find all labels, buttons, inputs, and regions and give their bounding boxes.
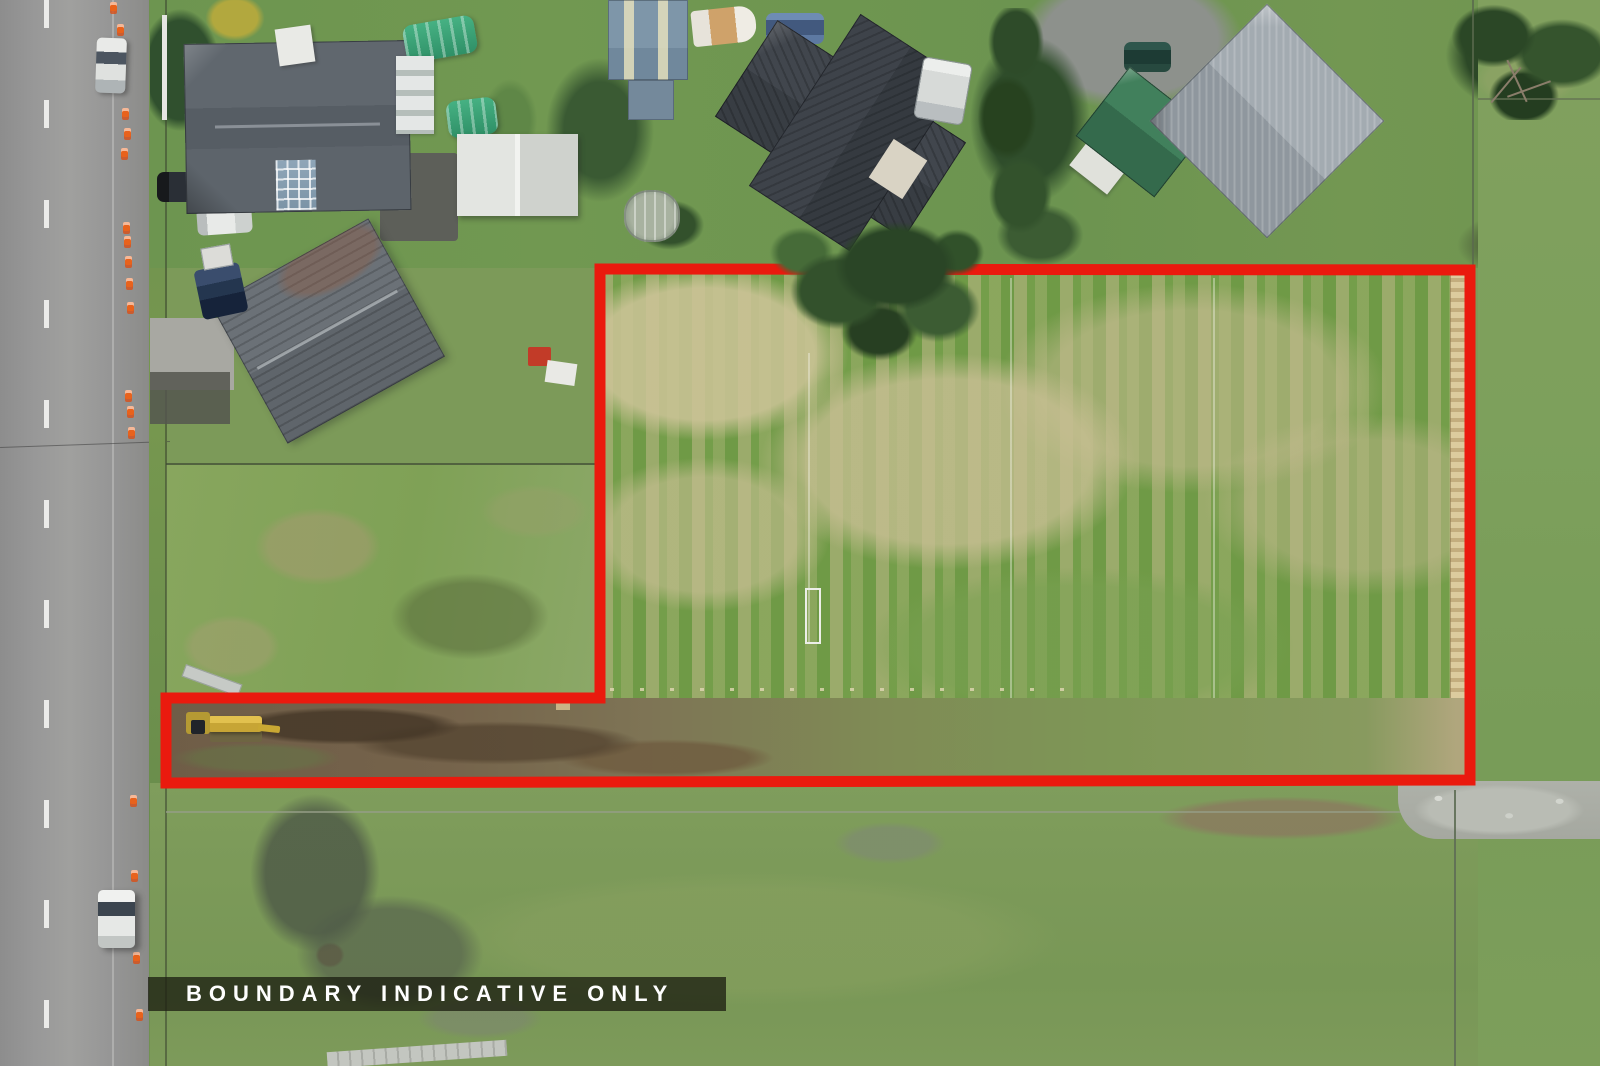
fence-post-row <box>610 688 1070 691</box>
traffic-cone-icon <box>127 302 134 311</box>
traffic-cone-icon <box>130 795 137 804</box>
green-tunnel-house-2 <box>445 96 499 139</box>
roadside-fence <box>165 0 167 1066</box>
gravel-patch <box>1398 781 1600 839</box>
boundary-disclaimer-text: BOUNDARY INDICATIVE ONLY <box>148 981 674 1007</box>
south-pasture <box>150 783 1478 1066</box>
east-boundary-fence <box>1472 0 1474 780</box>
traffic-cone-icon <box>124 128 131 137</box>
old-wire-fence <box>166 811 1460 813</box>
boundary-disclaimer-banner: BOUNDARY INDICATIVE ONLY <box>148 977 726 1011</box>
neighbour-paddock-east <box>1478 0 1600 1066</box>
parked-car-white-south <box>98 890 135 948</box>
traffic-cone-icon <box>127 406 134 415</box>
traffic-cone-icon <box>117 24 124 33</box>
old-fence-line <box>1213 278 1215 698</box>
white-gable-shed <box>457 134 578 216</box>
small-white-shed <box>275 25 316 67</box>
traffic-cone-icon <box>124 236 131 245</box>
aerial-photo: BOUNDARY INDICATIVE ONLY <box>0 0 1600 1066</box>
traffic-cone-icon <box>125 256 132 265</box>
white-frame-gate <box>805 588 821 644</box>
road <box>0 0 150 1066</box>
traffic-cone-icon <box>123 222 130 231</box>
traffic-cone-icon <box>125 390 132 399</box>
excavator-window <box>191 720 205 734</box>
large-tree-clump <box>750 200 985 375</box>
parked-car-white-north <box>95 37 127 93</box>
traffic-cone-icon <box>121 148 128 157</box>
traffic-cone-icon <box>133 952 140 961</box>
yellow-excavator <box>186 708 278 748</box>
white-panels <box>545 360 578 386</box>
trees-northeast-corner <box>1448 0 1600 120</box>
east-paddock-cross-fence <box>1478 98 1600 100</box>
octagonal-greenhouse <box>624 190 680 242</box>
blue-pickup-truck <box>193 262 248 320</box>
roof-ridge <box>257 290 398 370</box>
blue-steel-shed <box>608 0 688 80</box>
traffic-cone-icon <box>136 1009 143 1018</box>
old-fence-line <box>1010 278 1012 698</box>
south-paddock-fence <box>1454 790 1456 1066</box>
paddock-fence <box>166 463 600 465</box>
excavator-cab <box>186 712 210 734</box>
traffic-cone-icon <box>122 108 129 117</box>
traffic-cone-icon <box>126 278 133 287</box>
roof-ridge <box>215 123 380 129</box>
excavator-body <box>208 716 262 732</box>
traffic-cone-icon <box>131 870 138 879</box>
traffic-cone-icon <box>110 2 117 11</box>
plywood-sheet <box>556 700 570 710</box>
asphalt-patch <box>150 372 230 424</box>
white-camper-van <box>913 56 973 126</box>
tree-row-center <box>972 8 1060 236</box>
blue-shed-annex <box>628 80 674 120</box>
main-paddock-field <box>600 268 1470 698</box>
conservatory-glass-roof <box>276 160 317 211</box>
glasshouse-panels <box>396 56 434 134</box>
cleared-dirt-strip <box>166 698 1470 783</box>
traffic-cone-icon <box>128 427 135 436</box>
white-fence-section <box>162 15 167 120</box>
house-grey-roof-northwest <box>184 40 412 214</box>
rough-grass-paddock <box>166 465 600 698</box>
